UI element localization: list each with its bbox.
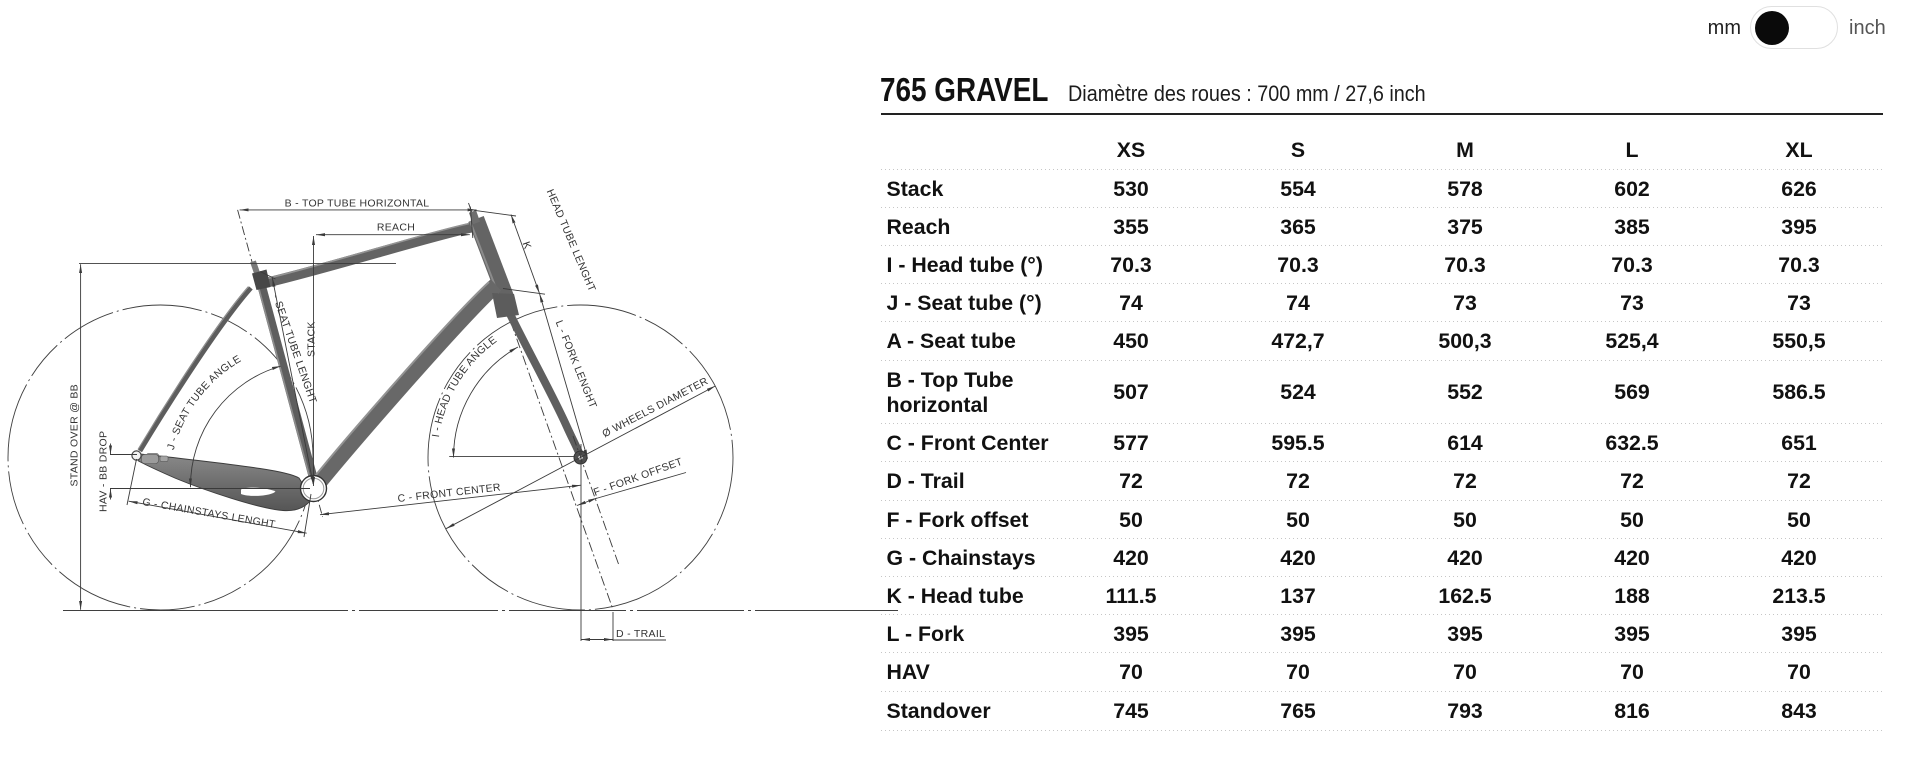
svg-text:HAV - BB DROP: HAV - BB DROP bbox=[98, 431, 110, 512]
svg-text:STACK: STACK bbox=[306, 321, 318, 357]
svg-text:D - TRAIL: D - TRAIL bbox=[616, 628, 665, 640]
svg-text:L - FORK LENGHT: L - FORK LENGHT bbox=[553, 319, 599, 411]
svg-text:REACH: REACH bbox=[377, 222, 415, 234]
svg-text:Ø WHEELS DIAMETER: Ø WHEELS DIAMETER bbox=[600, 375, 710, 440]
svg-text:HEAD TUBE LENGHT: HEAD TUBE LENGHT bbox=[544, 187, 598, 293]
svg-text:B - TOP TUBE HORIZONTAL: B - TOP TUBE HORIZONTAL bbox=[285, 198, 430, 210]
svg-text:C - FRONT CENTER: C - FRONT CENTER bbox=[397, 481, 502, 505]
svg-text:K: K bbox=[520, 240, 534, 251]
svg-text:STAND OVER @ BB: STAND OVER @ BB bbox=[69, 384, 81, 486]
svg-text:J - SEAT TUBE ANGLE: J - SEAT TUBE ANGLE bbox=[165, 353, 243, 451]
